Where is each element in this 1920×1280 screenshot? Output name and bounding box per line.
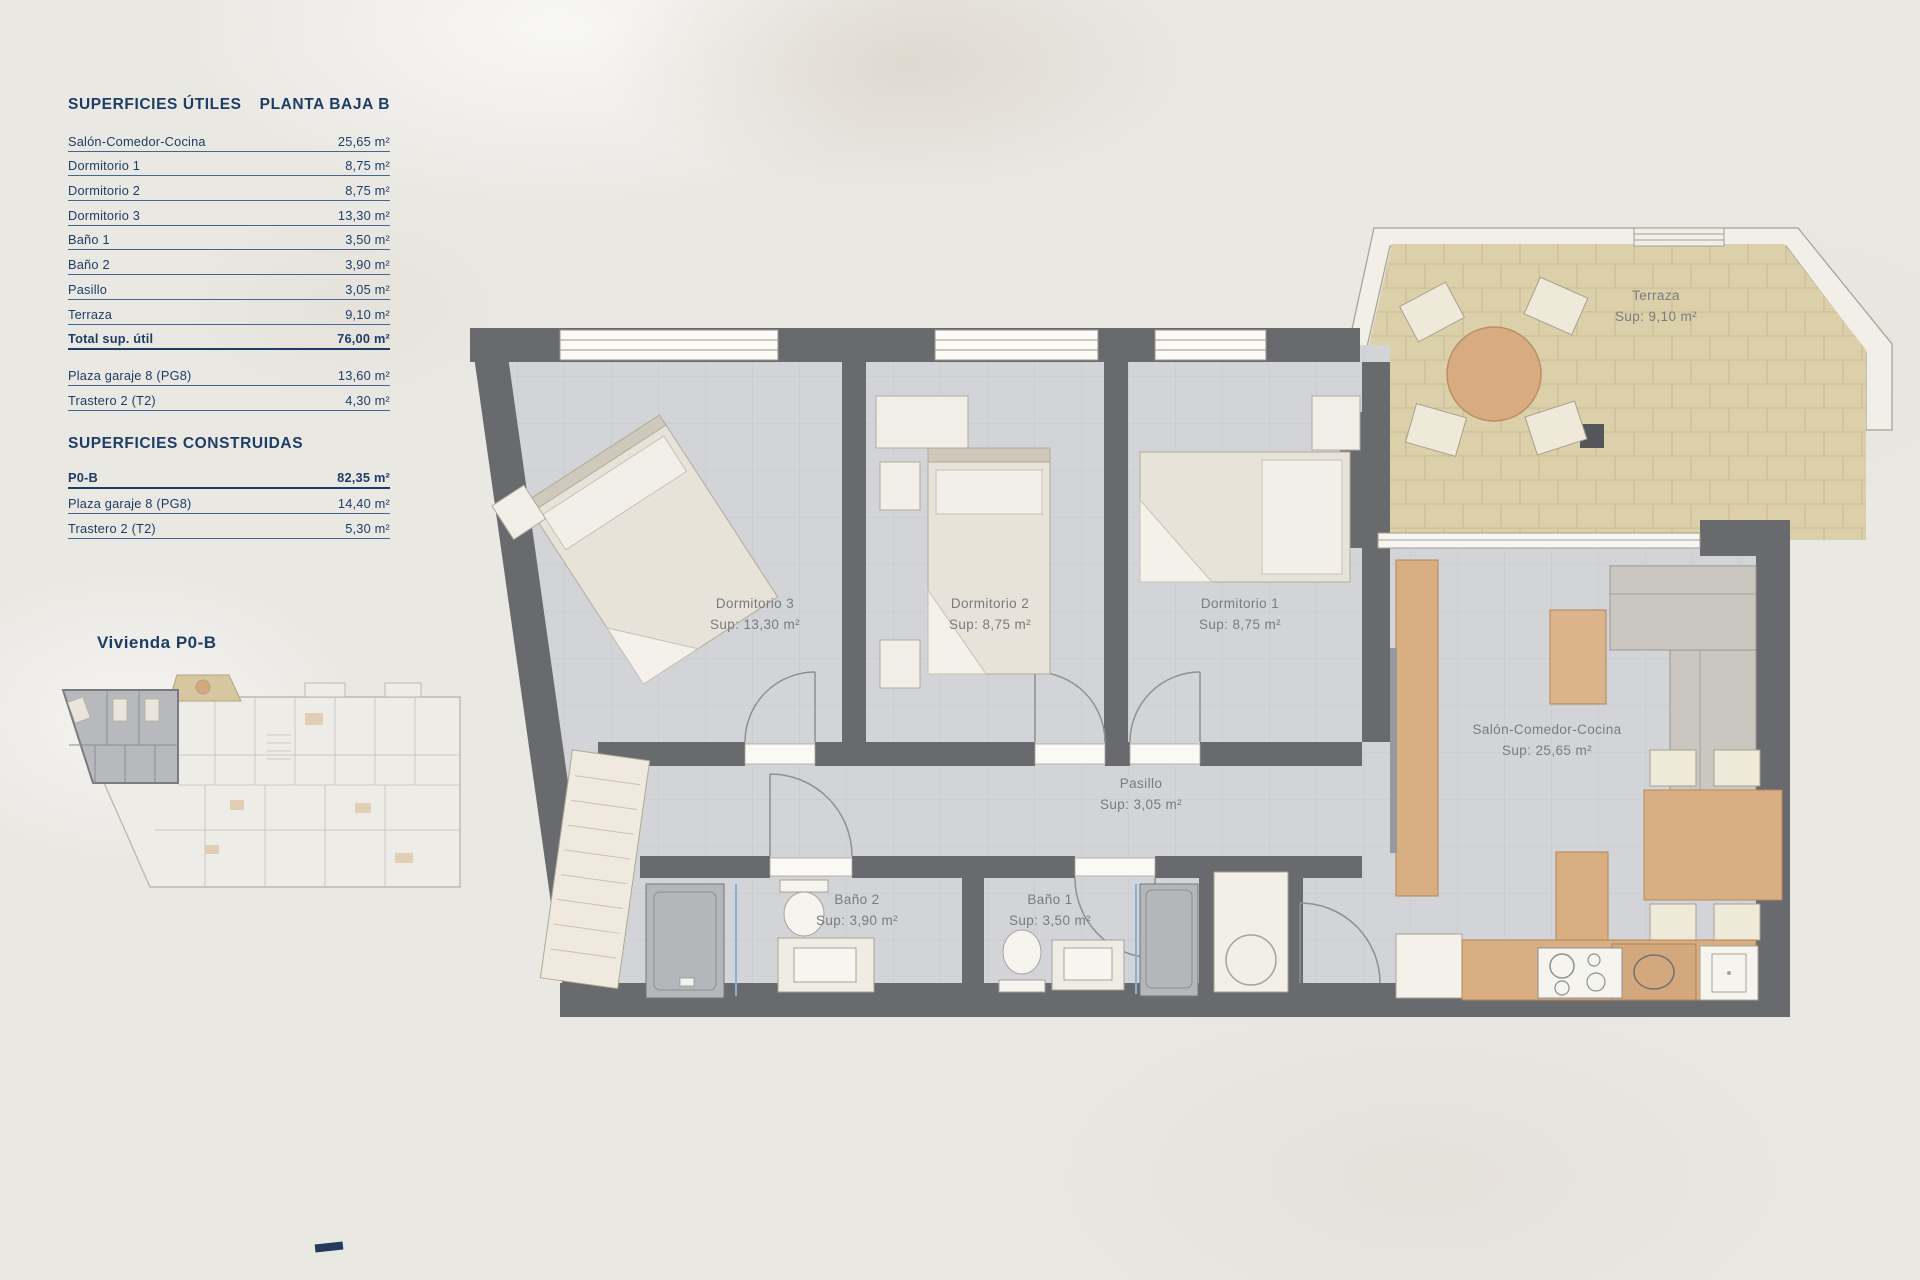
table-row: Trastero 2 (T2) 4,30 m² bbox=[68, 386, 390, 411]
terrace bbox=[1330, 228, 1892, 540]
table-row: Terraza 9,10 m² bbox=[68, 300, 390, 325]
table-row: Dormitorio 1 8,75 m² bbox=[68, 152, 390, 177]
table-row: Dormitorio 3 13,30 m² bbox=[68, 201, 390, 226]
room-label-terraza: TerrazaSup: 9,10 m² bbox=[1615, 286, 1697, 328]
sliding-door bbox=[1378, 533, 1700, 548]
floor-title: PLANTA BAJA B bbox=[260, 96, 390, 114]
table-row: Baño 1 3,50 m² bbox=[68, 226, 390, 251]
built-surfaces-title: SUPERFICIES CONSTRUIDAS bbox=[68, 435, 390, 453]
room-label-dormitorio-1: Dormitorio 1Sup: 8,75 m² bbox=[1199, 594, 1281, 636]
table-row: Baño 2 3,90 m² bbox=[68, 250, 390, 275]
room-label-salon: Salón-Comedor-CocinaSup: 25,65 m² bbox=[1472, 720, 1621, 762]
room-label-pasillo: PasilloSup: 3,05 m² bbox=[1100, 774, 1182, 816]
useful-rows: Salón-Comedor-Cocina 25,65 m² Dormitorio… bbox=[68, 127, 390, 350]
surface-table-panel: SUPERFICIES ÚTILES PLANTA BAJA B Salón-C… bbox=[68, 96, 390, 539]
table-row: Plaza garaje 8 (PG8) 14,40 m² bbox=[68, 489, 390, 514]
table-row: Plaza garaje 8 (PG8) 13,60 m² bbox=[68, 361, 390, 386]
room-label-dormitorio-2: Dormitorio 2Sup: 8,75 m² bbox=[949, 594, 1031, 636]
annex-rows: Plaza garaje 8 (PG8) 13,60 m² Trastero 2… bbox=[68, 361, 390, 410]
room-label-bano-1: Baño 1Sup: 3,50 m² bbox=[1009, 890, 1091, 932]
table-row-total: Total sup. útil 76,00 m² bbox=[68, 325, 390, 351]
dwelling-overview-label: Vivienda P0-B bbox=[97, 633, 217, 653]
table-heading: SUPERFICIES ÚTILES PLANTA BAJA B bbox=[68, 96, 390, 114]
building-overview-plan bbox=[55, 655, 465, 925]
table-row: P0-B 82,35 m² bbox=[68, 464, 390, 490]
useful-surfaces-title: SUPERFICIES ÚTILES bbox=[68, 96, 242, 114]
table-row: Trastero 2 (T2) 5,30 m² bbox=[68, 514, 390, 539]
built-rows: P0-B 82,35 m² Plaza garaje 8 (PG8) 14,40… bbox=[68, 464, 390, 539]
room-label-dormitorio-3: Dormitorio 3Sup: 13,30 m² bbox=[710, 594, 800, 636]
table-row: Pasillo 3,05 m² bbox=[68, 275, 390, 300]
floorplan-page: TerrazaSup: 9,10 m² Dormitorio 3Sup: 13,… bbox=[0, 0, 1920, 1280]
table-row: Salón-Comedor-Cocina 25,65 m² bbox=[68, 127, 390, 152]
table-row: Dormitorio 2 8,75 m² bbox=[68, 176, 390, 201]
room-label-bano-2: Baño 2Sup: 3,90 m² bbox=[816, 890, 898, 932]
